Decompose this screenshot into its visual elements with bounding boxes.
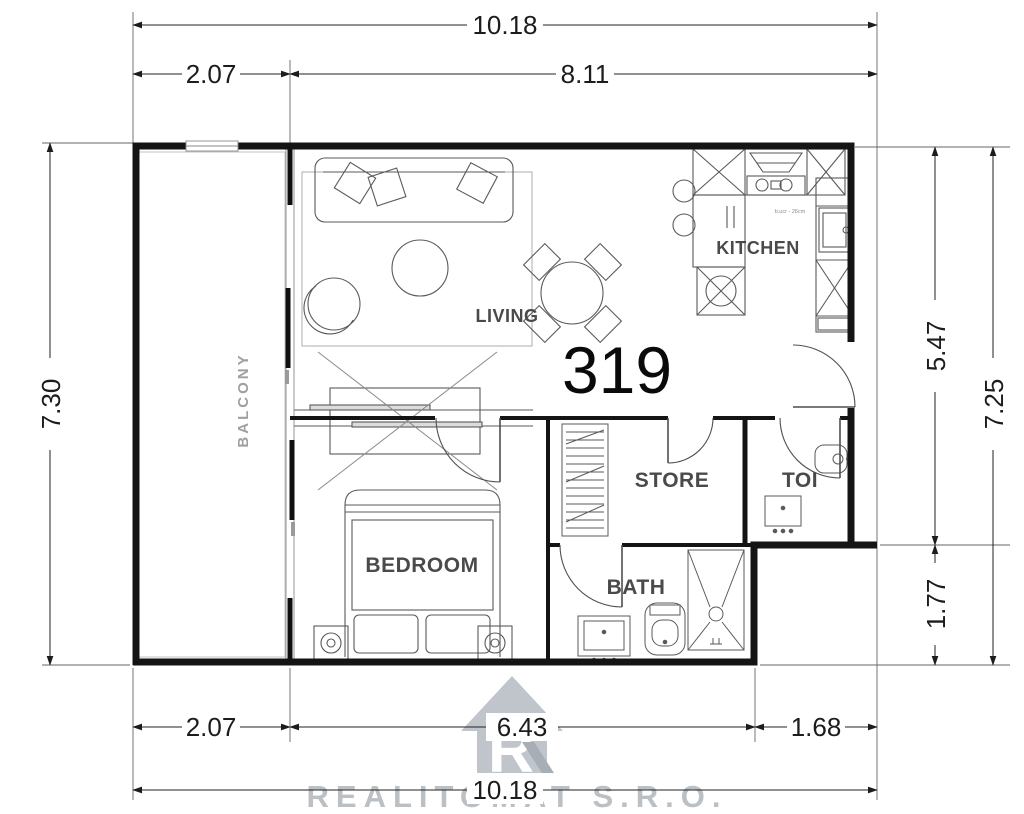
store-door bbox=[668, 418, 713, 463]
stove bbox=[747, 153, 805, 195]
toi-label: TOI bbox=[782, 469, 818, 492]
wardrobe bbox=[292, 352, 533, 490]
dim-bottom-middle: 6.43 bbox=[497, 712, 548, 742]
floor-plan-svg: R REALITOMAT S.R.O. bbox=[0, 0, 1024, 814]
dim-bottom-left: 2.07 bbox=[186, 712, 237, 742]
dim-top-left: 2.07 bbox=[186, 59, 237, 89]
balcony-partition bbox=[139, 146, 295, 662]
living-label: LIVING bbox=[475, 306, 538, 326]
bar-stool bbox=[673, 214, 695, 236]
dim-right-lower: 1.77 bbox=[921, 579, 951, 630]
bath-toilet bbox=[645, 603, 685, 655]
extension-lines bbox=[42, 12, 1010, 800]
kitchen-note: b.ucr - 26cm bbox=[775, 209, 806, 215]
dim-right-upper: 5.47 bbox=[921, 321, 951, 372]
dim-left-height: 7.30 bbox=[36, 379, 66, 430]
kitchen-sink bbox=[819, 208, 850, 252]
dim-top-total: 10.18 bbox=[472, 10, 537, 40]
kitchen-label: KITCHEN bbox=[716, 238, 800, 258]
bath-label: BATH bbox=[607, 576, 666, 599]
coffee-table bbox=[392, 240, 448, 296]
balcony-label: BALCONY bbox=[235, 352, 252, 447]
dim-bottom-total: 10.18 bbox=[472, 775, 537, 805]
toi-sink bbox=[765, 496, 801, 533]
store-shelving bbox=[562, 424, 608, 536]
dim-top-right: 8.11 bbox=[561, 59, 610, 89]
dim-right-total: 7.25 bbox=[979, 379, 1009, 430]
nightstand bbox=[478, 626, 512, 660]
bar-stool bbox=[673, 180, 695, 202]
toi-toilet bbox=[815, 445, 850, 473]
fridge bbox=[697, 267, 745, 315]
armchair bbox=[304, 278, 360, 334]
bedroom-furniture bbox=[292, 352, 533, 660]
dimensions bbox=[34, 11, 1007, 804]
bedroom-label: BEDROOM bbox=[365, 554, 478, 577]
balcony-window bbox=[186, 141, 238, 151]
kitchen-right-counter bbox=[816, 178, 853, 332]
sofa bbox=[315, 158, 513, 222]
floor-plan-page: R REALITOMAT S.R.O. bbox=[0, 0, 1024, 814]
bath-sink bbox=[578, 616, 630, 662]
shower bbox=[688, 550, 744, 650]
dining-table-set bbox=[524, 244, 622, 343]
unit-number: 319 bbox=[562, 333, 672, 407]
dimension-labels: 10.18 2.07 8.11 7.30 5.47 1.77 7.25 2.07… bbox=[36, 10, 1009, 805]
living-furniture bbox=[302, 158, 621, 346]
dim-bottom-right: 1.68 bbox=[791, 712, 842, 742]
nightstand bbox=[314, 626, 348, 660]
store-label: STORE bbox=[635, 469, 709, 492]
